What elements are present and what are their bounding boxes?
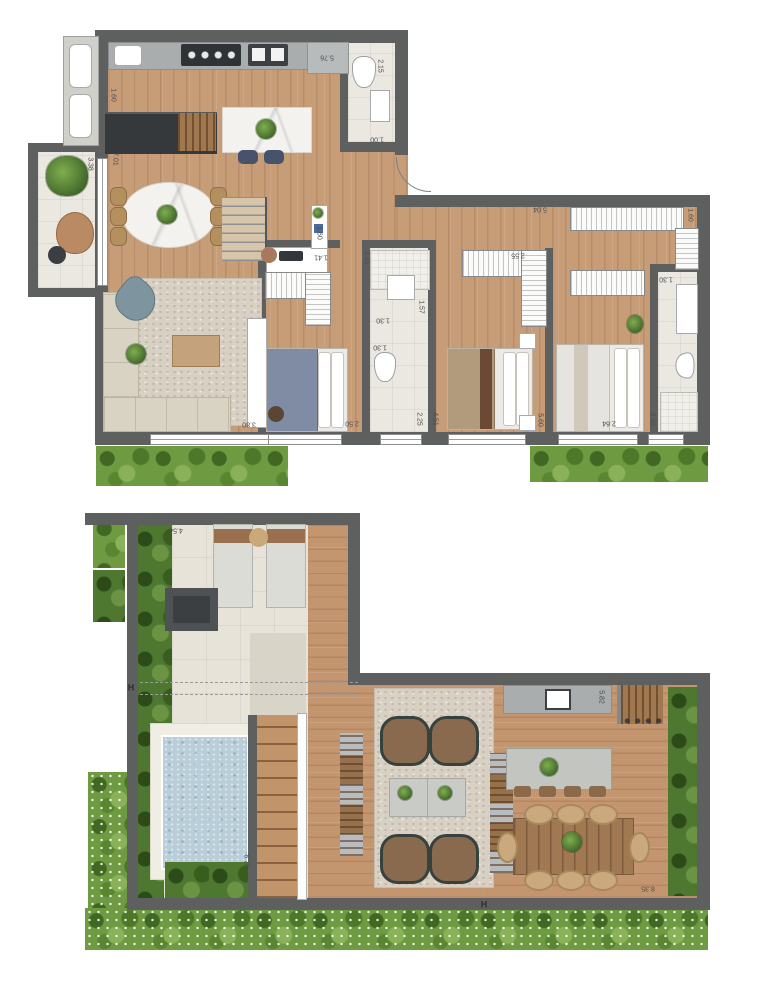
wardrobe-master-right: [675, 228, 699, 270]
lounge-armchair: [380, 834, 430, 884]
island-plant-low: [540, 758, 558, 776]
dimension-label: 1.30: [373, 344, 387, 351]
wall-powder-bottom: [340, 142, 408, 152]
dimension-label: 8.70: [243, 854, 250, 868]
double-sink: [248, 44, 288, 66]
lounger-side-table: [249, 528, 268, 547]
window-bedroom-2: [448, 434, 526, 445]
staircase-down: [257, 715, 297, 898]
lounger-headrest: [267, 529, 305, 543]
pillow: [331, 352, 344, 428]
throw-blanket: [480, 349, 492, 429]
shower-master: [660, 392, 698, 432]
wardrobe-master-2: [570, 270, 645, 296]
terrace-wall-step-right: [348, 513, 360, 685]
grill: [617, 685, 663, 724]
pillow: [627, 348, 640, 428]
outdoor-sink: [545, 689, 571, 710]
projection-line: [140, 694, 358, 695]
dimension-label: 4.51: [363, 251, 370, 265]
dining-chair: [110, 207, 127, 226]
hedge-strip-right: [530, 446, 708, 482]
dark-planter: [165, 588, 218, 631]
pillow: [318, 352, 331, 428]
dimension-label: 8.35: [641, 885, 655, 892]
wall-right-upper: [395, 30, 408, 155]
nightstand: [519, 333, 536, 349]
wall-bath1-top: [362, 240, 436, 248]
outdoor-chair: [629, 832, 650, 863]
bar-stool: [564, 786, 581, 797]
terrace-wall-bottom: [127, 898, 710, 910]
elevator-2: [69, 94, 92, 138]
dimension-label: 2.55: [511, 252, 525, 259]
island-stool-2: [264, 150, 284, 164]
nightstand: [519, 415, 536, 431]
dimension-label: 5.82: [598, 690, 605, 704]
wall-masterbath-left: [650, 264, 658, 432]
dimension-label: 1.30: [376, 317, 390, 324]
sofa-main: [103, 397, 231, 432]
window-master-bath: [648, 434, 684, 445]
desk-lamp: [279, 251, 303, 261]
balcony-sliding-door: [97, 158, 108, 286]
dimension-label: 1.57: [418, 300, 425, 314]
lower-plan: [0, 500, 768, 1000]
bar-stool: [589, 786, 606, 797]
bar-stool: [514, 786, 531, 797]
dimension-label: 7.01: [112, 152, 119, 166]
dimension-label: 4.54: [169, 527, 183, 534]
projection-line: [140, 682, 358, 683]
desk-chair: [261, 247, 277, 263]
sun-lounger: [213, 524, 253, 608]
dimension-label: 1.60: [110, 88, 117, 102]
master-plant: [627, 315, 643, 333]
coffee-table: [172, 335, 220, 367]
table-plant: [398, 786, 412, 800]
double-vanity-master: [676, 284, 698, 334]
dining-chair: [110, 187, 127, 206]
closet-bedroom2-v: [521, 250, 547, 327]
pillow: [503, 352, 516, 426]
sink-bath1: [387, 275, 415, 300]
dimension-label: 1.60: [316, 226, 323, 240]
dining-plant-low: [562, 832, 582, 852]
dimension-label: 2.15: [377, 59, 384, 73]
throw-beige: [574, 345, 588, 431]
dimension-label: 3.80: [242, 421, 256, 428]
bed-master: [556, 344, 644, 432]
wall-balcony-left: [28, 143, 38, 297]
bar-stool: [539, 786, 556, 797]
lounge-armchair: [429, 716, 479, 766]
kitchen-bar-stools: [178, 113, 216, 151]
balcony-side-table: [48, 246, 66, 264]
tv-sideboard: [247, 318, 267, 428]
shelf-plant: [313, 208, 323, 218]
wardrobe-master-top: [570, 207, 684, 231]
dimension-label: 1.60: [687, 208, 694, 222]
dimension-label: 2.25: [416, 412, 423, 426]
elevator-1: [69, 44, 92, 88]
lounge-armchair: [380, 716, 430, 766]
hedge-right-column: [668, 687, 698, 896]
dimension-label: 5.04: [533, 206, 547, 213]
outdoor-chair: [588, 870, 618, 891]
garden-bottom: [85, 908, 708, 950]
wall-bath1-left: [362, 240, 370, 432]
garden-left-mid: [93, 570, 125, 622]
pool: [161, 735, 249, 870]
closet-bedroom1-v: [305, 272, 331, 326]
kitchen-sink: [114, 45, 142, 66]
dimension-label: 3.90: [649, 412, 656, 426]
outdoor-chair: [497, 832, 518, 863]
outdoor-chair: [524, 870, 554, 891]
window-bedroom-1: [268, 434, 342, 445]
wall-wing-top: [395, 195, 710, 207]
garden-left-low: [88, 772, 128, 908]
dimension-label: 4.51: [432, 412, 439, 426]
pillow: [614, 348, 627, 428]
terrace-steps: [250, 633, 306, 715]
island-stool-1: [238, 150, 258, 164]
dimension-label: 1.00: [370, 136, 384, 143]
dimension-label: 1.41: [314, 254, 328, 261]
dimension-label: 5.60: [537, 413, 544, 427]
lounger-headrest: [214, 529, 252, 543]
lounge-bench-left: [340, 733, 363, 856]
bedroom1-stool: [268, 406, 284, 422]
cooktop: [181, 44, 241, 66]
hedge-strip-left: [96, 446, 288, 486]
dimension-label: 1.30: [659, 276, 673, 283]
section-marker: H: [128, 684, 135, 693]
window-bath-1: [380, 434, 422, 445]
section-marker: H: [481, 901, 488, 910]
outdoor-chair: [588, 804, 618, 825]
sun-lounger: [266, 524, 306, 608]
outdoor-chair: [524, 804, 554, 825]
toilet-master: [676, 353, 695, 379]
bar-island: [506, 748, 612, 790]
wall-balcony-bottom: [28, 288, 108, 297]
staircase-up: [222, 197, 267, 261]
island-plant: [256, 119, 276, 139]
balcony-plant: [46, 156, 88, 196]
covered-wall-top: [348, 673, 710, 685]
glass-railing: [297, 713, 307, 900]
dimension-label: 3.38: [87, 157, 94, 171]
window-master: [558, 434, 638, 445]
outdoor-chair: [556, 870, 586, 891]
floor-plan-canvas: 5.762.151.001.603.387.011.601.415.042.55…: [0, 0, 768, 1000]
stair-wall: [248, 715, 257, 898]
terrace-wall-right: [697, 673, 710, 910]
dining-chair: [110, 227, 127, 246]
outdoor-chair: [556, 804, 586, 825]
dimension-label: 2.50: [345, 420, 359, 427]
terrace-wall-left: [127, 513, 138, 910]
dimension-label: 2.64: [602, 420, 616, 427]
dining-plant: [157, 205, 177, 224]
table-plant: [438, 786, 452, 800]
powder-sink: [370, 90, 390, 122]
lounge-armchair: [429, 834, 479, 884]
living-plant: [126, 344, 146, 364]
dimension-label: 5.76: [320, 54, 334, 61]
